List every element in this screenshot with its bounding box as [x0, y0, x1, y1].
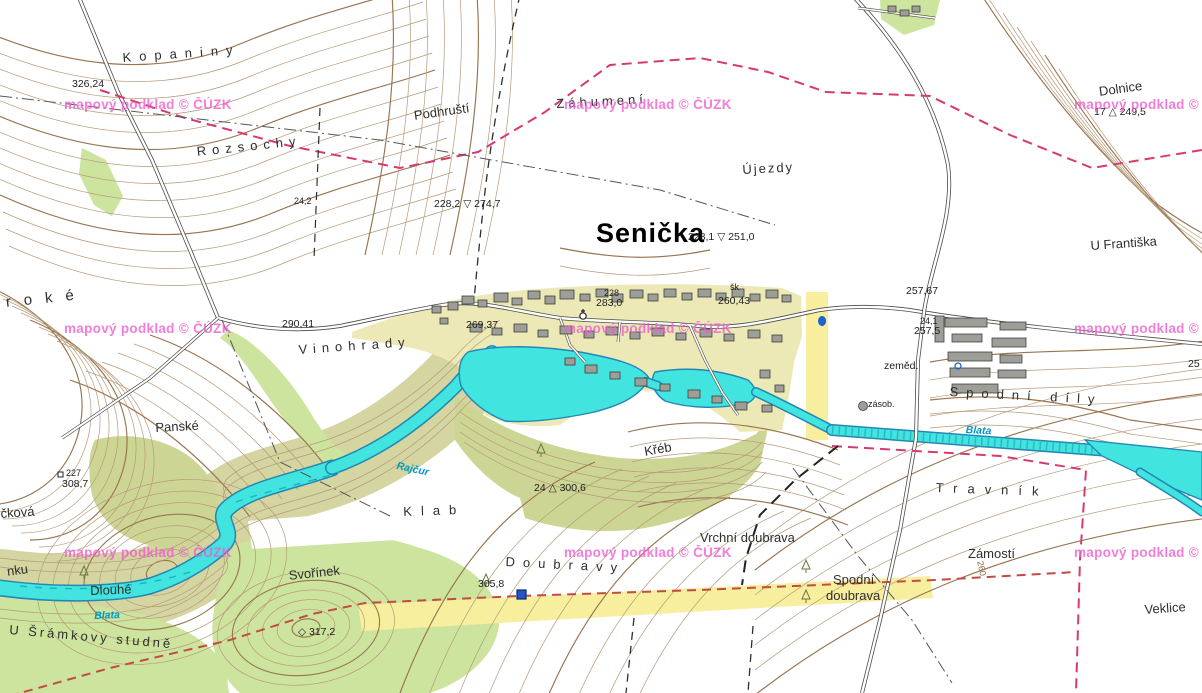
- map-viewport[interactable]: SeničkaKopaninyRozsochyPodhruštíZáhumení…: [0, 0, 1202, 693]
- map-graphics: [0, 0, 1202, 693]
